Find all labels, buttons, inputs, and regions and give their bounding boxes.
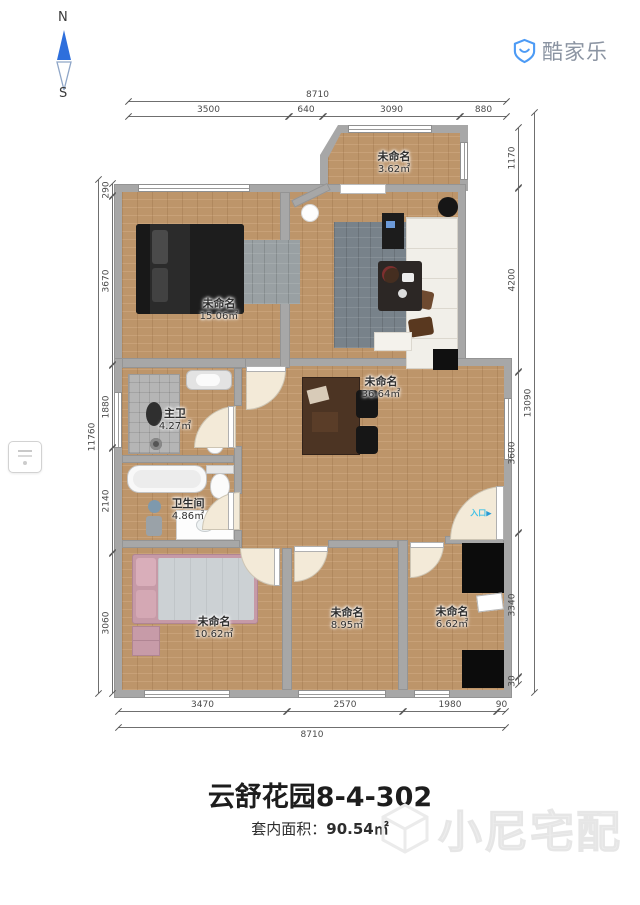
floor-plan: 入口▶ 未命名 3.62㎡ 未命名 15.06㎡ 未命名 36.64㎡ 主卫 4… <box>0 0 640 905</box>
bed2-dresser <box>132 626 160 656</box>
wall-room895-top <box>328 540 398 548</box>
shower-drain <box>150 438 162 450</box>
side-table <box>382 213 404 249</box>
dim-left-segment-3: 1880 <box>112 365 113 448</box>
wall-bedroom2-right <box>282 548 292 690</box>
dim-top-segment-3: 3090 <box>323 116 460 117</box>
wall-bath-right-b <box>234 446 242 494</box>
dim-left-segment-4: 2140 <box>112 448 113 553</box>
master-bed-pillow <box>152 268 168 302</box>
dim-bottom-segment-4: 90 <box>497 711 506 712</box>
dim-right-segment-3: 3600 <box>518 372 519 533</box>
bath2-door-leaf <box>228 492 234 530</box>
watermark: 小尼宅配 <box>378 796 622 860</box>
table-item <box>312 412 338 432</box>
window-balcony-top <box>348 125 432 133</box>
bath2-stool <box>146 516 162 536</box>
dim-right-segment-2: 4200 <box>518 188 519 372</box>
ottoman <box>374 332 412 351</box>
window-room895-bottom <box>298 690 386 698</box>
master-bed-pillow <box>152 230 168 264</box>
wall-bath-divider <box>122 455 234 463</box>
shower-seat <box>146 402 162 426</box>
area-label: 套内面积： <box>251 820 326 838</box>
bed2-door-leaf <box>274 548 280 586</box>
window-bedroom2-bottom <box>144 690 230 698</box>
dim-left-total: 11760 <box>98 180 99 693</box>
room662-door-leaf <box>410 542 444 548</box>
bedroom-door-leaf <box>246 366 286 372</box>
bed2-pillow <box>136 558 156 586</box>
window-bedroom-top <box>138 184 250 192</box>
wall-room895-right <box>398 540 408 690</box>
dim-bottom-segment-1: 3470 <box>118 711 287 712</box>
dim-top-segment-1: 3500 <box>128 116 289 117</box>
wall-bath-right-a <box>234 368 242 406</box>
dim-right-segment-1: 1170 <box>518 128 519 188</box>
dim-bottom-total: 8710 <box>118 727 506 728</box>
bed2-mattress <box>158 558 254 620</box>
dim-left-segment-2: 3670 <box>112 196 113 365</box>
entrance-door-leaf <box>496 486 504 540</box>
bathtub-inner <box>133 470 201 488</box>
dining-chair <box>356 390 378 418</box>
dim-right-segment-5: 30 <box>518 677 519 684</box>
ceiling-lamp <box>301 204 319 222</box>
side-table-item <box>386 221 395 228</box>
watermark-cube-icon <box>378 800 432 856</box>
tray <box>402 273 414 282</box>
bed2-pillow <box>136 590 156 618</box>
plant <box>382 266 399 283</box>
bath1-door-leaf <box>228 406 234 448</box>
window-balcony-right <box>460 142 468 180</box>
window-room662-bottom <box>414 690 450 698</box>
wall-bedroom2-top <box>122 540 240 548</box>
balcony-door-opening <box>340 184 386 194</box>
wardrobe <box>462 543 504 593</box>
window-bath-left <box>114 392 122 448</box>
master-bed-blanket <box>190 224 244 314</box>
bath2-fixture <box>148 500 161 513</box>
black-round-table <box>438 197 458 217</box>
entrance-label: 入口▶ <box>470 508 491 519</box>
cup <box>398 289 407 298</box>
dining-chair <box>356 426 378 454</box>
dim-top-segment-4: 880 <box>460 116 507 117</box>
entrance-arrow-icon: ▶ <box>486 510 491 518</box>
bedroom-rug <box>240 240 300 304</box>
dim-left-segment-5: 3060 <box>112 553 113 693</box>
entrance-text: 入口 <box>470 509 486 518</box>
dim-bottom-segment-2: 2570 <box>287 711 403 712</box>
room895-door-leaf <box>294 546 328 552</box>
left-margin-tag <box>8 441 42 473</box>
bath1-basin <box>196 374 220 386</box>
wall-bedroom-bottom <box>122 358 246 368</box>
watermark-text: 小尼宅配 <box>438 796 622 860</box>
dim-right-segment-4: 3340 <box>518 533 519 677</box>
speaker-table <box>433 349 458 370</box>
cabinet <box>462 650 504 688</box>
dim-top-total: 8710 <box>128 101 507 102</box>
balcony-floor <box>328 133 460 185</box>
dim-right-total: 13090 <box>534 113 535 692</box>
tag-icon <box>9 442 41 472</box>
dim-bottom-segment-3: 1980 <box>403 711 497 712</box>
dim-top-segment-2: 640 <box>289 116 323 117</box>
master-bed-headboard <box>136 224 150 314</box>
wall-mirror <box>476 592 504 612</box>
